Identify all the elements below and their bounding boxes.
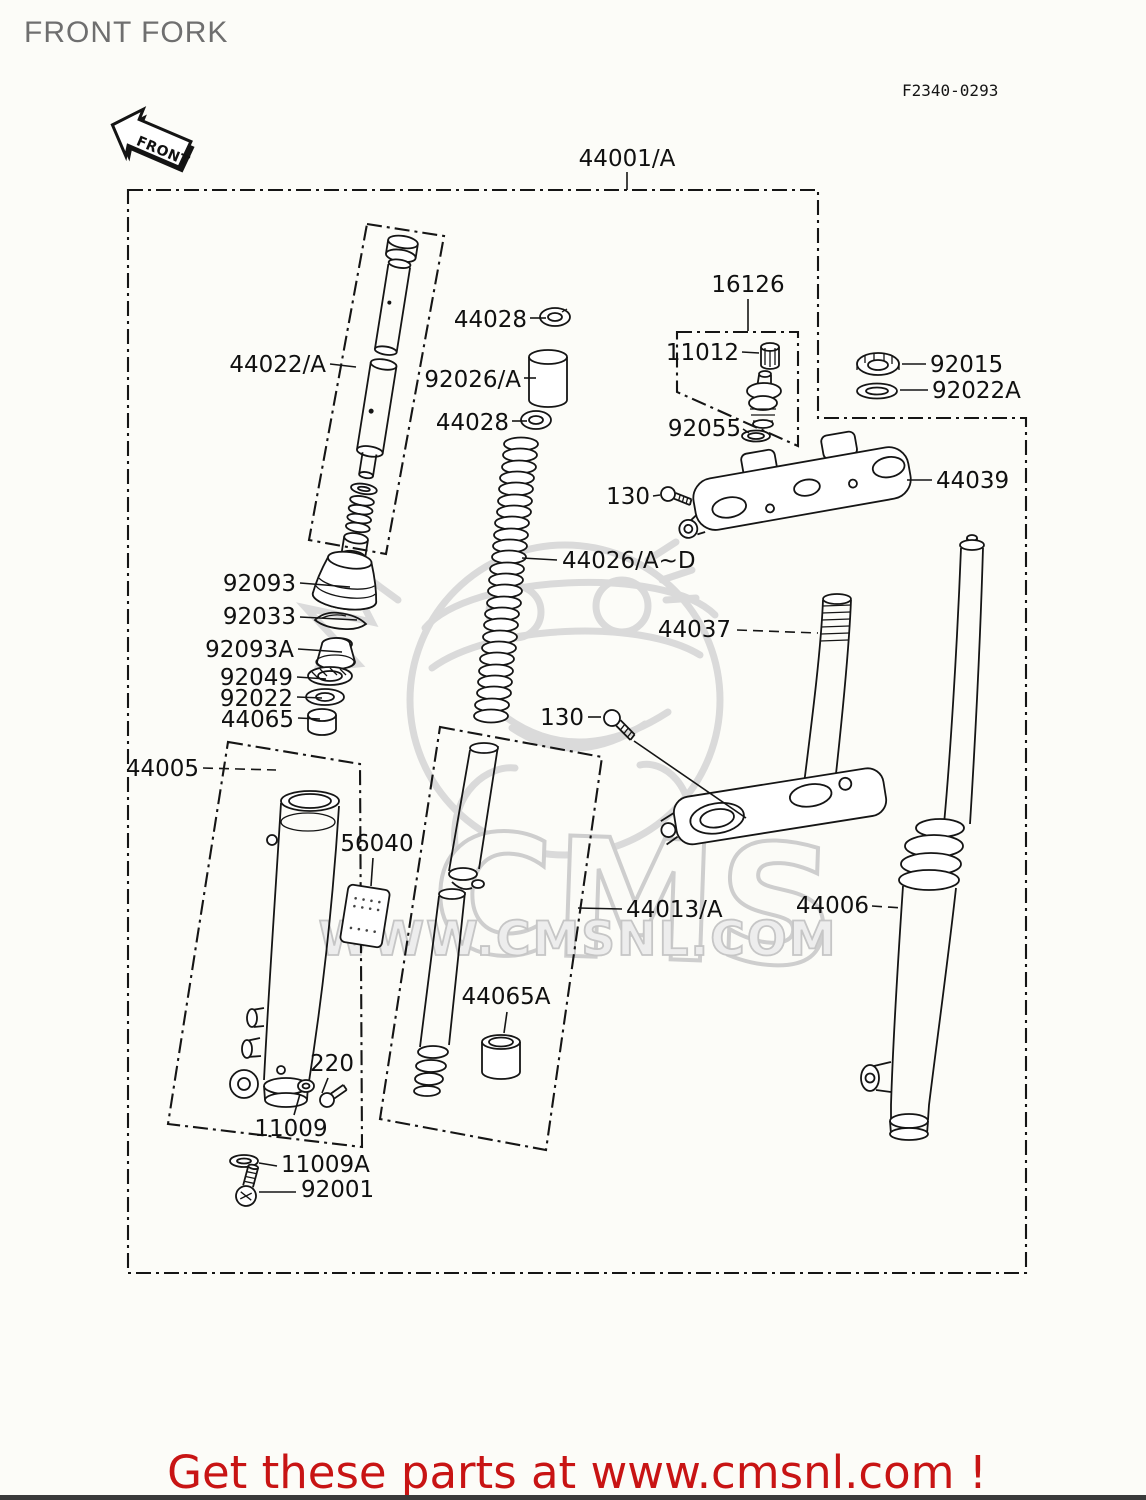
drawing-washer-11009: [298, 1080, 314, 1092]
leader-44026: [522, 558, 557, 560]
part-label-92022a: 92022A: [932, 378, 1021, 404]
drawing-washer-92022A: [857, 384, 897, 399]
part-label-92026a: 92026/A: [424, 367, 521, 393]
front-fork-diagram: FRONT FORK F2340-0293 FRONT CMS WWW.CMSN…: [0, 0, 1146, 1500]
figure-code: F2340-0293: [902, 81, 998, 100]
part-label-92001: 92001: [301, 1177, 374, 1203]
part-label-11012: 11012: [666, 340, 739, 366]
part-label-220: 220: [310, 1051, 354, 1077]
drawing-dust-cap-92093: [311, 548, 382, 613]
part-label-44028-mid: 44028: [436, 410, 509, 436]
drawing-steering-stem-44037: [803, 594, 851, 792]
bottom-edge-bar: [0, 1495, 1146, 1500]
part-label-44005: 44005: [126, 756, 199, 782]
leader-11009A: [259, 1163, 277, 1166]
drawing-bushing-44065: [308, 709, 336, 735]
drawing-washer-44028-mid: [521, 411, 551, 429]
part-label-92055: 92055: [668, 416, 741, 442]
part-label-11009: 11009: [254, 1116, 327, 1142]
drawing-washer-44028-top: [540, 308, 570, 326]
leader-44022: [330, 364, 356, 367]
drawing-valve-cap-11012: [761, 343, 779, 369]
leader-44037: [737, 630, 818, 633]
leader-44065: [298, 718, 320, 719]
promo-link-text[interactable]: Get these parts at www.cmsnl.com !: [167, 1446, 987, 1499]
drawing-right-fork-44006: [861, 535, 984, 1140]
drawing-bushing-44065A: [482, 1035, 520, 1079]
part-label-44006: 44006: [796, 893, 869, 919]
front-arrow-icon: FRONT: [104, 102, 201, 178]
watermark-mascot: CMS WWW.CMSNL.COM: [306, 542, 839, 1004]
part-label-130-lower: 130: [540, 705, 584, 731]
leader-56040: [371, 858, 373, 886]
drawing-damper-rod-44022: [338, 234, 419, 564]
part-label-92033: 92033: [223, 604, 296, 630]
part-label-44028-top: 44028: [454, 307, 527, 333]
leader-44065A: [504, 1012, 507, 1033]
page-title: FRONT FORK: [24, 16, 228, 49]
part-label-92093a: 92093A: [205, 637, 294, 663]
drawing-seal-92093A: [316, 638, 355, 669]
part-label-44037: 44037: [658, 617, 731, 643]
drawing-bolt-220: [317, 1082, 349, 1110]
leader-44013: [578, 908, 622, 909]
drawing-bolt-130-upper: [659, 485, 693, 507]
part-label-56040: 56040: [340, 831, 413, 857]
part-label-92093: 92093: [223, 571, 296, 597]
leader-44006: [872, 906, 903, 908]
leader-11012: [742, 352, 759, 353]
drawing-pad-56040: [340, 884, 391, 948]
drawing-air-valve-92055: [747, 371, 781, 428]
part-label-44065: 44065: [221, 707, 294, 733]
leader-92022: [297, 697, 322, 698]
part-label-44001a: 44001/A: [579, 146, 676, 172]
part-label-44022a: 44022/A: [229, 352, 326, 378]
part-label-11009a: 11009A: [281, 1152, 370, 1178]
drawing-bolt-92001: [234, 1163, 262, 1208]
parts-fiche-page: FRONT FORK F2340-0293 FRONT CMS WWW.CMSN…: [0, 0, 1146, 1500]
leader-220: [322, 1078, 328, 1093]
part-label-44065a: 44065A: [462, 984, 551, 1010]
leader-44005: [203, 768, 276, 770]
part-label-44039: 44039: [936, 468, 1009, 494]
drawing-oring-92055: [742, 431, 770, 442]
drawing-oil-seal-92049: [308, 667, 352, 685]
part-label-44013a: 44013/A: [626, 897, 723, 923]
part-label-44026ad: 44026/A~D: [562, 548, 696, 574]
part-label-130-upper: 130: [606, 484, 650, 510]
drawing-locknut-92015: [857, 353, 899, 375]
part-label-16126: 16126: [711, 272, 784, 298]
leader-130-upper: [653, 495, 660, 496]
drawing-fork-spring-44026: [474, 438, 538, 723]
part-label-92015: 92015: [930, 352, 1003, 378]
